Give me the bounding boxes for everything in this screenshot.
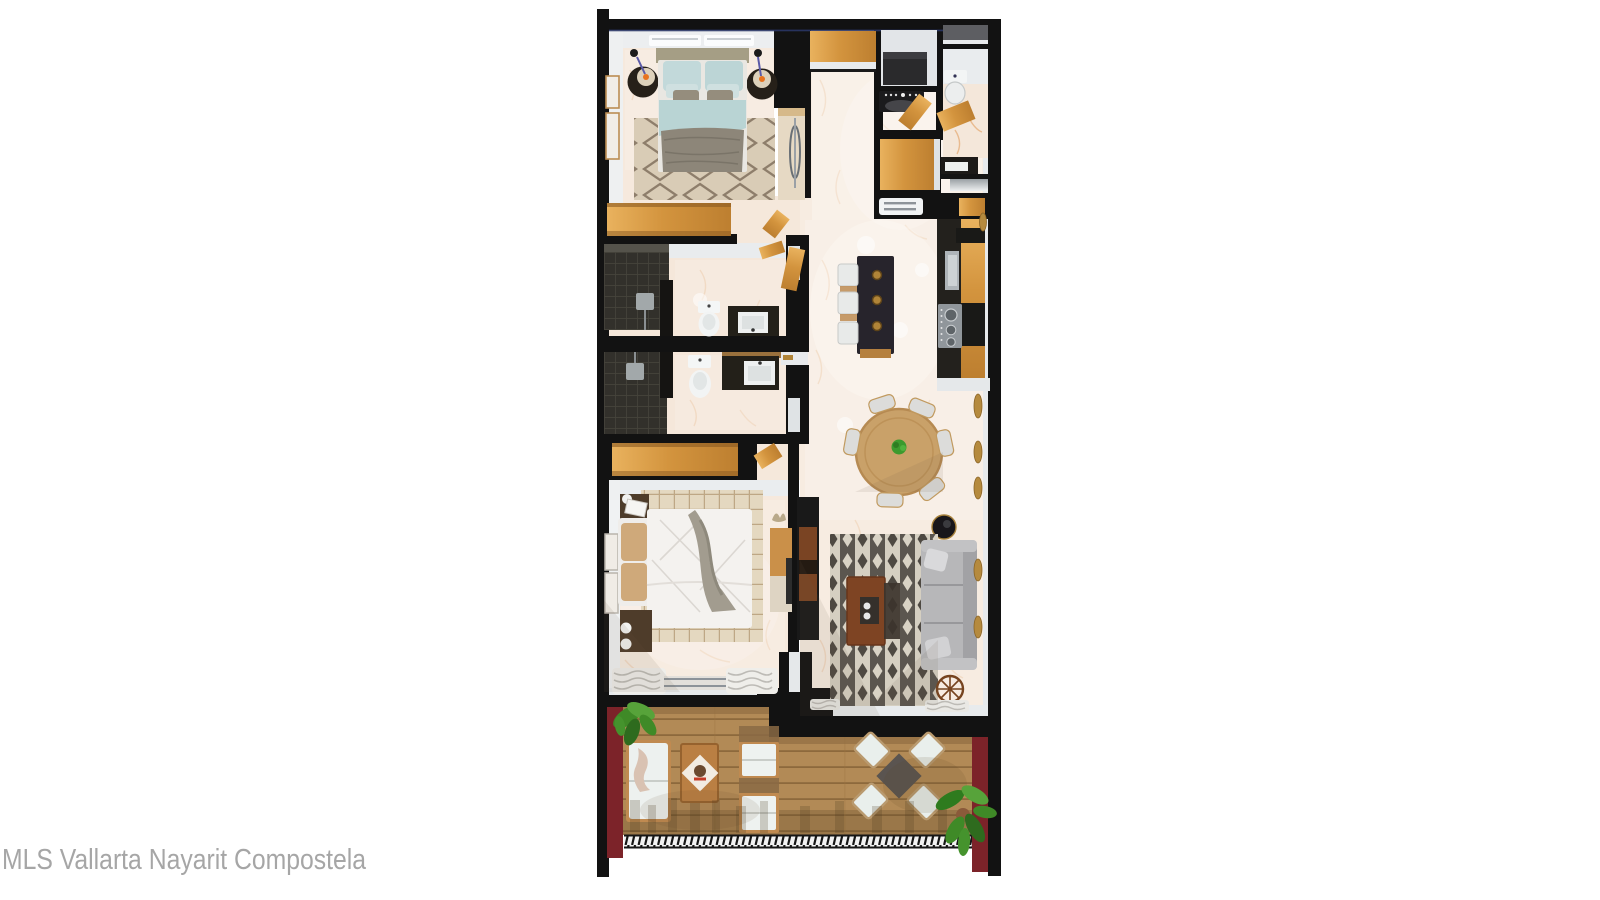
svg-text:MLS Vallarta Nayarit Compostel: MLS Vallarta Nayarit Compostela [2,844,366,876]
